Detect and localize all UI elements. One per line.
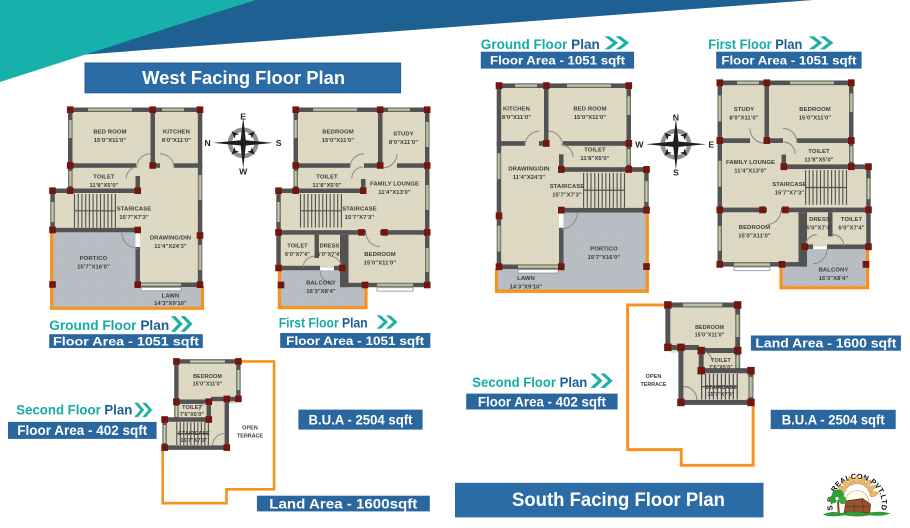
svg-text:Ground Floor Plan: Ground Floor Plan	[481, 36, 600, 52]
svg-text:E: E	[708, 139, 714, 149]
svg-text:BEDROOM: BEDROOM	[695, 325, 724, 331]
svg-text:PORTICO: PORTICO	[80, 256, 108, 262]
svg-text:S: S	[276, 138, 282, 148]
svg-text:15’7”X7’3”: 15’7”X7’3”	[345, 215, 375, 221]
svg-text:BEDROOM: BEDROOM	[799, 107, 830, 113]
svg-text:South Facing Floor Plan: South Facing Floor Plan	[512, 490, 725, 511]
svg-text:STAIRCASE: STAIRCASE	[550, 184, 585, 190]
svg-text:BALCONY: BALCONY	[819, 268, 849, 274]
svg-text:OPEN: OPEN	[646, 374, 662, 380]
svg-text:15’0”X11’0”: 15’0”X11’0”	[94, 138, 126, 144]
svg-text:B.U.A - 2504 sqft: B.U.A - 2504 sqft	[309, 412, 413, 428]
svg-text:TERRACE: TERRACE	[237, 434, 263, 440]
svg-text:Floor Area - 402 sqft: Floor Area - 402 sqft	[478, 394, 606, 409]
svg-text:DRAWING/DIN: DRAWING/DIN	[508, 167, 549, 173]
svg-text:15’7”X7’3”: 15’7”X7’3”	[552, 193, 582, 199]
svg-text:Floor Area - 1051 sqft: Floor Area - 1051 sqft	[721, 54, 856, 68]
svg-text:FAMILY LOUNGE: FAMILY LOUNGE	[370, 182, 419, 188]
svg-text:TOILET: TOILET	[841, 217, 863, 223]
svg-text:11’4”X24’3”: 11’4”X24’3”	[154, 244, 186, 250]
svg-text:15’7”X16’0”: 15’7”X16’0”	[588, 255, 621, 261]
svg-text:STAIRCASE: STAIRCASE	[342, 207, 377, 213]
svg-text:N: N	[673, 113, 679, 123]
svg-text:STUDY: STUDY	[393, 132, 413, 138]
svg-text:5’0”X7’4”: 5’0”X7’4”	[806, 226, 832, 232]
svg-text:Land Area - 1600 sqft: Land Area - 1600 sqft	[755, 336, 897, 351]
svg-text:6’0”X7’4”: 6’0”X7’4”	[838, 226, 864, 232]
svg-text:BEDROOM: BEDROOM	[739, 225, 770, 231]
svg-text:11’8”X5’0”: 11’8”X5’0”	[312, 183, 341, 189]
svg-text:TOILET: TOILET	[711, 358, 731, 364]
svg-text:11’8”X5’0”: 11’8”X5’0”	[804, 158, 833, 164]
svg-text:FAMILY LOUNGE: FAMILY LOUNGE	[726, 160, 775, 166]
svg-text:Second Floor Plan: Second Floor Plan	[16, 402, 132, 418]
svg-text:STAIRCASE: STAIRCASE	[117, 207, 152, 213]
svg-text:15’0”X11’0”: 15’0”X11’0”	[799, 116, 831, 122]
svg-text:Floor Area - 402 sqft: Floor Area - 402 sqft	[17, 423, 148, 438]
svg-text:BED ROOM: BED ROOM	[573, 107, 606, 113]
svg-text:TOILET: TOILET	[93, 175, 115, 181]
svg-text:KITCHEN: KITCHEN	[163, 130, 190, 136]
svg-text:16’3”X8’4”: 16’3”X8’4”	[306, 289, 336, 295]
svg-text:Floor Area - 1051 sqft: Floor Area - 1051 sqft	[286, 334, 424, 348]
svg-text:11’4”X13’0”: 11’4”X13’0”	[378, 190, 410, 196]
svg-text:7’6”X5’0”: 7’6”X5’0”	[180, 412, 204, 418]
svg-text:11’4”X13’0”: 11’4”X13’0”	[734, 169, 766, 175]
svg-text:TOILET: TOILET	[808, 149, 830, 155]
svg-text:LAWN: LAWN	[162, 294, 180, 300]
svg-text:TOILET: TOILET	[584, 148, 606, 154]
svg-text:TERRACE: TERRACE	[640, 382, 666, 388]
svg-text:BEDROOM: BEDROOM	[364, 252, 395, 258]
svg-text:8’0”X11’0”: 8’0”X11’0”	[729, 116, 758, 122]
svg-text:15’0”X11’0”: 15’0”X11’0”	[322, 138, 354, 144]
svg-text:15’7”X16’0”: 15’7”X16’0”	[77, 265, 110, 271]
svg-text:BALCONY: BALCONY	[306, 281, 336, 287]
svg-text:7’6”X5’0”: 7’6”X5’0”	[709, 365, 733, 371]
svg-text:16’3”X8’4”: 16’3”X8’4”	[819, 276, 849, 282]
svg-text:DRAWING/DIN: DRAWING/DIN	[150, 236, 191, 242]
svg-text:11’8”X5’0”: 11’8”X5’0”	[580, 156, 609, 162]
svg-text:BEDROOM: BEDROOM	[322, 130, 353, 136]
svg-text:15’0”X11’0”: 15’0”X11’0”	[574, 115, 606, 121]
svg-text:8’0”X11’0”: 8’0”X11’0”	[502, 115, 531, 121]
svg-text:S: S	[673, 168, 679, 178]
svg-text:Second Floor Plan: Second Floor Plan	[472, 374, 587, 390]
svg-text:Ground Floor Plan: Ground Floor Plan	[49, 317, 169, 333]
svg-text:KITCHEN: KITCHEN	[503, 107, 530, 113]
svg-text:N: N	[204, 138, 210, 148]
svg-text:Floor Area - 1051 sqft: Floor Area - 1051 sqft	[490, 54, 625, 68]
svg-text:15’7”X7’3”: 15’7”X7’3”	[119, 215, 149, 221]
svg-text:PORTICO: PORTICO	[590, 247, 618, 253]
svg-text:15’7”X7’3”: 15’7”X7’3”	[708, 392, 735, 398]
svg-text:Land Area - 1600sqft: Land Area - 1600sqft	[269, 496, 417, 511]
svg-text:W: W	[635, 139, 644, 149]
svg-text:TOILET: TOILET	[182, 405, 202, 411]
svg-text:15’0”X11’0”: 15’0”X11’0”	[738, 234, 770, 240]
svg-text:8’0”X11’0”: 8’0”X11’0”	[389, 140, 418, 146]
svg-text:STAIRCASE: STAIRCASE	[772, 182, 807, 188]
svg-text:8’0”X11’0”: 8’0”X11’0”	[162, 138, 191, 144]
svg-text:Floor Area - 1051 sqft: Floor Area - 1051 sqft	[53, 334, 199, 348]
svg-text:First Floor Plan: First Floor Plan	[279, 315, 368, 331]
svg-text:14’3”X9’10”: 14’3”X9’10”	[510, 285, 543, 291]
svg-text:DRESS: DRESS	[809, 217, 830, 223]
svg-text:B.U.A - 2504 sqft: B.U.A - 2504 sqft	[782, 411, 885, 427]
svg-text:15’7”X7’3”: 15’7”X7’3”	[775, 191, 805, 197]
svg-text:BEDROOM: BEDROOM	[193, 374, 222, 380]
svg-text:15’7”X7’3”: 15’7”X7’3”	[181, 438, 208, 444]
svg-text:BED ROOM: BED ROOM	[93, 130, 126, 136]
svg-text:15’0”X11’0”: 15’0”X11’0”	[364, 261, 396, 267]
svg-text:LAWN: LAWN	[517, 276, 535, 282]
svg-text:OPEN: OPEN	[242, 426, 258, 432]
svg-text:STAIRCASE: STAIRCASE	[705, 385, 737, 391]
svg-text:15’0”X11’0”: 15’0”X11’0”	[695, 333, 725, 339]
svg-text:DRESS: DRESS	[320, 244, 340, 250]
svg-text:W: W	[239, 166, 248, 176]
svg-text:TOILET: TOILET	[287, 244, 308, 250]
svg-text:11’4”X24’3”: 11’4”X24’3”	[513, 175, 545, 181]
svg-text:15’0”X11’0”: 15’0”X11’0”	[193, 382, 223, 388]
svg-text:West Facing Floor Plan: West Facing Floor Plan	[142, 67, 345, 88]
svg-text:6’0”X7’4”: 6’0”X7’4”	[285, 252, 310, 258]
svg-text:14’3”X9’10”: 14’3”X9’10”	[154, 301, 187, 307]
svg-text:First Floor Plan: First Floor Plan	[708, 36, 802, 52]
svg-text:TOILET: TOILET	[316, 175, 338, 181]
svg-text:11’8”X5’0”: 11’8”X5’0”	[89, 183, 118, 189]
svg-text:STUDY: STUDY	[734, 107, 754, 113]
svg-text:E: E	[240, 111, 246, 121]
svg-text:5’0”X7’4”: 5’0”X7’4”	[317, 252, 342, 258]
svg-text:STAIRCASE: STAIRCASE	[178, 431, 210, 437]
